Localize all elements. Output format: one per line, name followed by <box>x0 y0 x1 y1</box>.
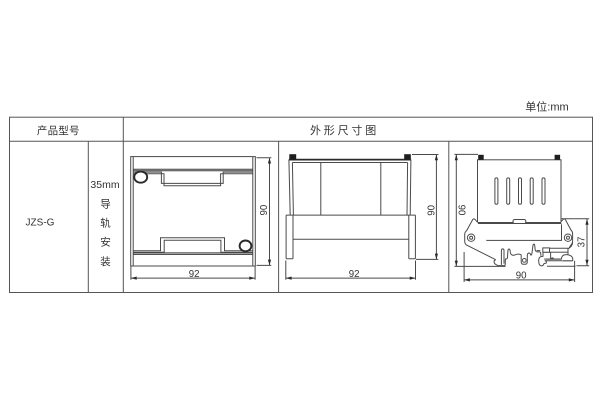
svg-text:单位:mm: 单位:mm <box>525 100 568 114</box>
svg-text:92: 92 <box>189 269 200 280</box>
svg-text:外形尺寸图: 外形尺寸图 <box>310 123 379 137</box>
svg-text:安: 安 <box>100 235 111 248</box>
svg-text:装: 装 <box>100 255 111 268</box>
svg-text:轨: 轨 <box>100 216 111 229</box>
svg-text:90: 90 <box>259 204 270 215</box>
svg-text:90: 90 <box>455 205 466 216</box>
svg-text:92: 92 <box>349 269 360 280</box>
svg-text:产品型号: 产品型号 <box>37 124 80 137</box>
svg-text:导: 导 <box>100 198 111 210</box>
svg-text:JZS-G: JZS-G <box>26 217 55 228</box>
svg-text:90: 90 <box>426 204 437 215</box>
svg-text:37: 37 <box>577 237 588 248</box>
svg-text:90: 90 <box>516 271 527 282</box>
svg-text:35mm: 35mm <box>90 179 119 191</box>
